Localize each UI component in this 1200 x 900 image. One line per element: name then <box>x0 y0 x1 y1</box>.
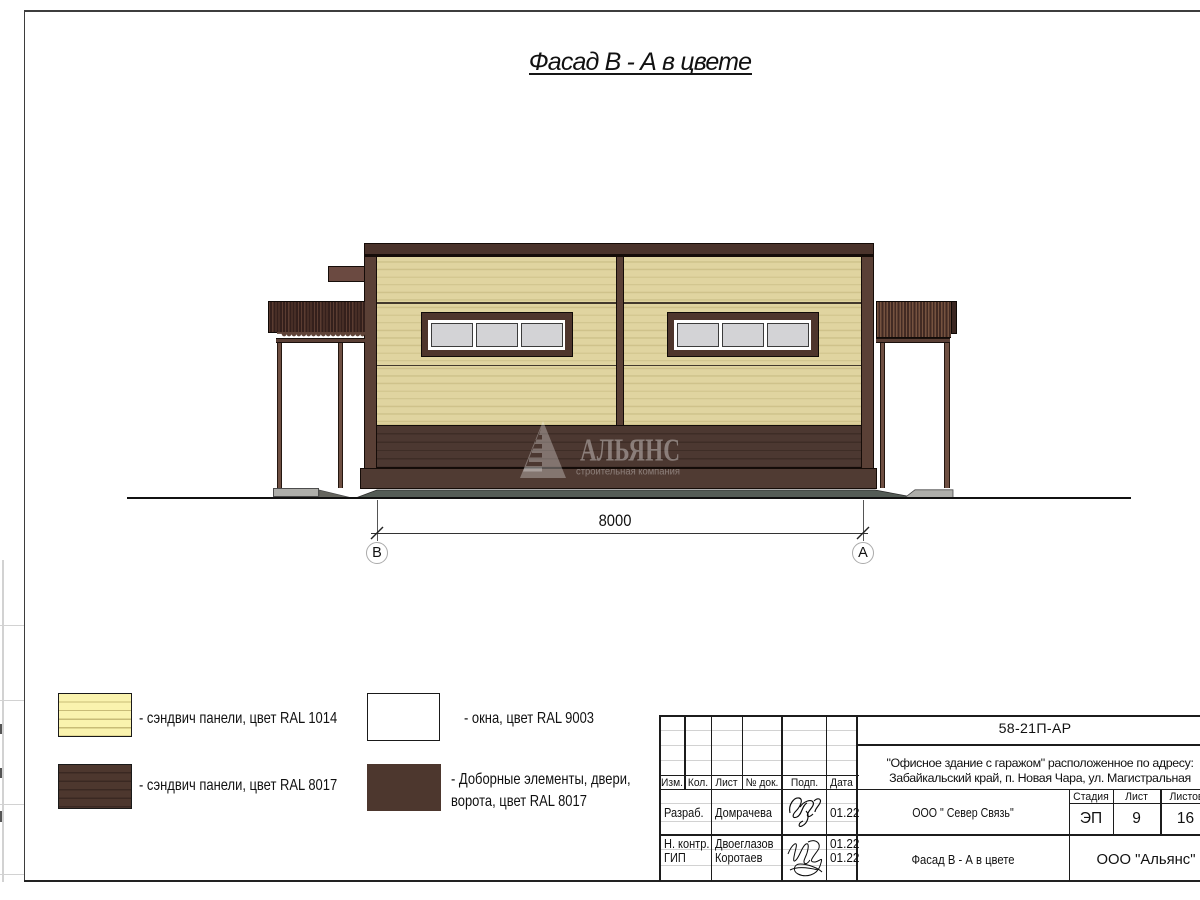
svg-text:АЛЬЯНС: АЛЬЯНС <box>580 432 680 468</box>
svg-text:строительная компания: строительная компания <box>576 467 680 478</box>
